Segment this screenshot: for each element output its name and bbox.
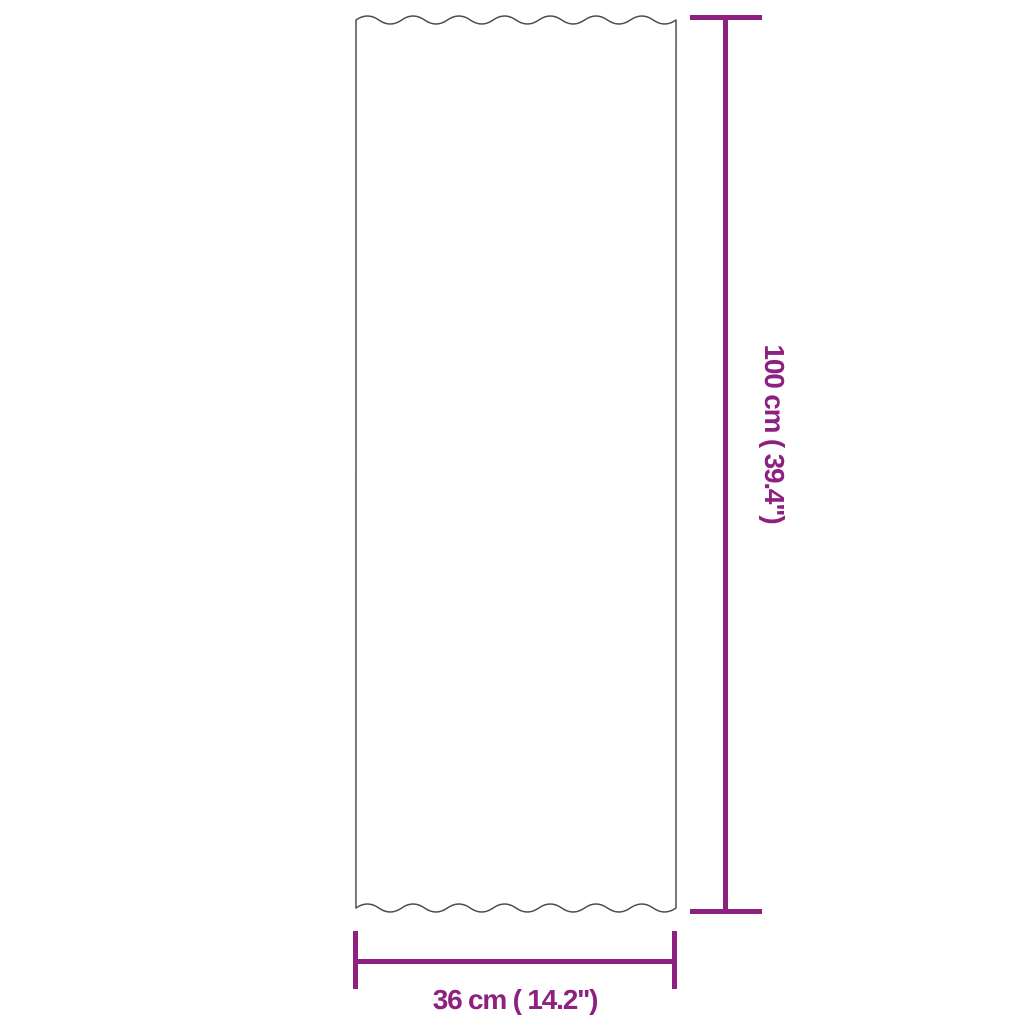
height-dimension-cap-bottom	[690, 909, 762, 914]
width-dimension-label: 36 cm ( 14.2")	[433, 984, 598, 1016]
height-dimension-label: 100 cm ( 39.4")	[758, 345, 790, 524]
width-dimension-cap-right	[672, 931, 677, 989]
panel-outline-path	[356, 16, 676, 912]
diagram-canvas: 100 cm ( 39.4") 36 cm ( 14.2")	[0, 0, 1024, 1024]
width-dimension-line	[353, 959, 677, 964]
height-dimension-line	[723, 17, 728, 912]
height-dimension-cap-top	[690, 15, 762, 20]
width-dimension-cap-left	[353, 931, 358, 989]
corrugated-panel-outline	[0, 0, 1024, 1024]
